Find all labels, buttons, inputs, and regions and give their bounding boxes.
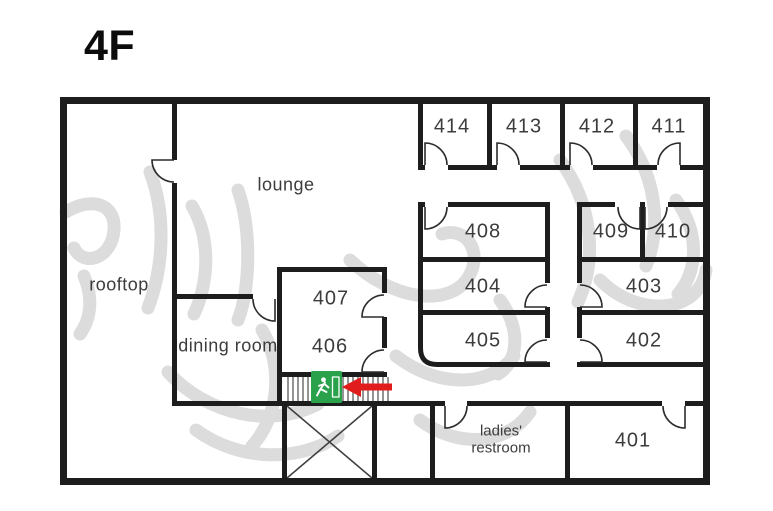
floor-plan-drawing [0,0,773,511]
room-label-414: 414 [434,116,470,139]
room-label-404: 404 [465,276,501,299]
room-label-ladies-restroom: ladies' restroom [471,424,530,457]
elevator-shaft [287,406,372,478]
room-label-407: 407 [313,288,349,311]
evacuation-arrow-icon [342,377,392,397]
floor-title: 4F [84,22,135,71]
room-label-402: 402 [626,330,662,353]
room-label-403: 403 [626,276,662,299]
room-label-409: 409 [593,221,629,244]
room-label-413: 413 [506,116,542,139]
floor-plan-page: 4F 414 413 412 411 408 409 410 404 403 4… [0,0,773,511]
room-label-406: 406 [312,336,348,359]
ladies-restroom-line2: restroom [471,440,530,457]
ladies-restroom-line1: ladies' [471,424,530,441]
room-label-411: 411 [652,116,687,139]
room-label-lounge: lounge [257,175,314,196]
room-label-405: 405 [465,330,501,353]
room-label-408: 408 [465,221,501,244]
room-label-dining-room: dining room [178,336,278,357]
room-label-rooftop: rooftop [89,275,149,296]
exit-sign [311,371,342,403]
room-label-401: 401 [615,430,651,453]
room-label-410: 410 [655,221,691,244]
watermark [66,136,706,455]
room-label-412: 412 [579,116,615,139]
